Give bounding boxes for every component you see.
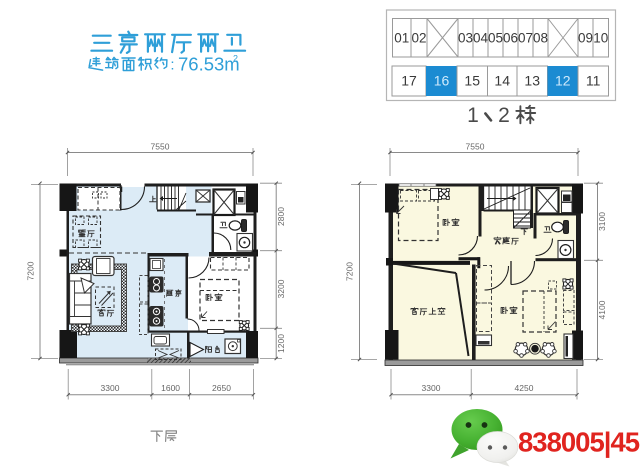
svg-text:2: 2: [498, 104, 510, 127]
svg-text:3200: 3200: [276, 279, 286, 298]
svg-text:11: 11: [586, 73, 601, 89]
svg-text:08: 08: [533, 31, 548, 46]
svg-text:14: 14: [494, 73, 510, 89]
svg-text:02: 02: [411, 31, 426, 46]
svg-text:15: 15: [464, 73, 480, 89]
svg-text:4100: 4100: [597, 300, 607, 319]
svg-text:01: 01: [394, 31, 409, 46]
svg-text:3300: 3300: [422, 383, 441, 393]
svg-text:04: 04: [473, 31, 489, 46]
svg-text:17: 17: [401, 73, 417, 89]
svg-text:4250: 4250: [515, 383, 534, 393]
svg-text:76.53m: 76.53m: [178, 54, 240, 75]
svg-text:7200: 7200: [26, 261, 36, 280]
svg-text:10: 10: [593, 31, 608, 46]
svg-text:7200: 7200: [345, 262, 355, 281]
svg-text:1200: 1200: [276, 334, 286, 353]
svg-text:09: 09: [578, 31, 593, 46]
svg-text:1600: 1600: [161, 383, 180, 393]
svg-text:07: 07: [518, 31, 533, 46]
svg-text:2650: 2650: [212, 383, 231, 393]
svg-text:3300: 3300: [101, 383, 120, 393]
svg-text:7550: 7550: [151, 142, 170, 152]
svg-text:06: 06: [503, 31, 518, 46]
svg-text:3100: 3100: [597, 212, 607, 231]
svg-text:03: 03: [458, 31, 473, 46]
svg-text:2800: 2800: [276, 207, 286, 226]
svg-text:13: 13: [524, 73, 540, 89]
svg-text:1: 1: [467, 104, 479, 127]
svg-text:12: 12: [555, 73, 571, 89]
svg-text:05: 05: [488, 31, 503, 46]
svg-text:838005|45: 838005|45: [518, 427, 640, 458]
svg-text:16: 16: [434, 73, 450, 89]
svg-text:2: 2: [233, 54, 238, 64]
svg-text::: :: [170, 57, 174, 74]
svg-text:7550: 7550: [466, 142, 485, 152]
